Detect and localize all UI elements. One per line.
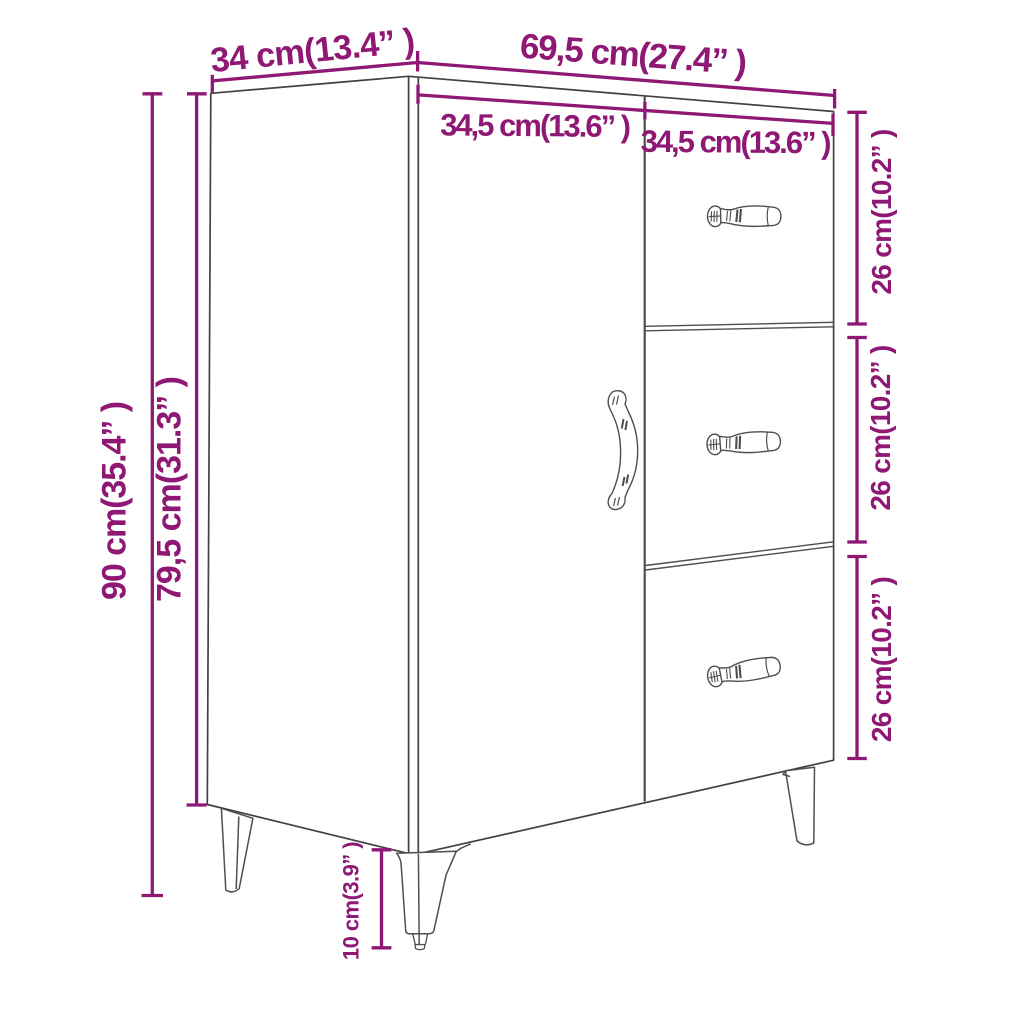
svg-text:26 cm(10.2” ): 26 cm(10.2” ): [865, 345, 896, 510]
svg-text:34,5 cm(13.6” ): 34,5 cm(13.6” ): [440, 107, 630, 144]
svg-text:90 cm(35.4” ): 90 cm(35.4” ): [96, 402, 134, 600]
svg-text:34,5 cm(13.6” ): 34,5 cm(13.6” ): [641, 124, 831, 161]
svg-text:26 cm(10.2” ): 26 cm(10.2” ): [866, 577, 897, 742]
svg-text:79,5 cm(31.3” ): 79,5 cm(31.3” ): [151, 377, 189, 602]
svg-text:26 cm(10.2” ): 26 cm(10.2” ): [866, 129, 897, 294]
svg-text:10 cm(3.9” ): 10 cm(3.9” ): [339, 842, 364, 960]
